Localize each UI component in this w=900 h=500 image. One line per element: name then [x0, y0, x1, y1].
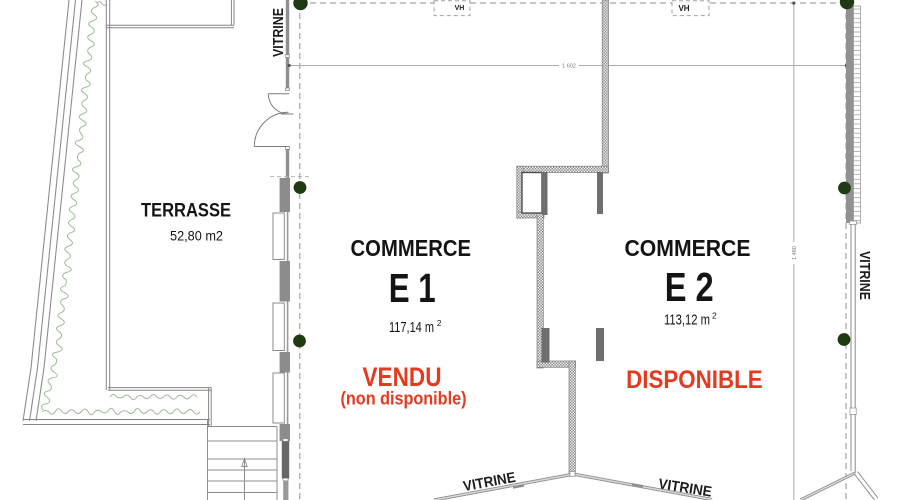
svg-text:VITRINE: VITRINE — [856, 251, 872, 300]
svg-text:VITRINE: VITRINE — [271, 8, 287, 57]
svg-text:1 602: 1 602 — [562, 64, 576, 70]
svg-text:52,80 m2: 52,80 m2 — [170, 228, 223, 244]
svg-text:E 2: E 2 — [665, 264, 714, 310]
svg-text:2: 2 — [437, 318, 442, 328]
svg-text:117,14 m: 117,14 m — [389, 320, 434, 336]
svg-text:1 480: 1 480 — [792, 246, 798, 260]
svg-text:E 1: E 1 — [389, 265, 436, 311]
svg-text:VENDU: VENDU — [363, 362, 442, 392]
svg-text:(non disponible): (non disponible) — [341, 389, 467, 409]
svg-text:2: 2 — [712, 311, 717, 321]
svg-text:VH: VH — [678, 4, 689, 13]
svg-text:COMMERCE: COMMERCE — [625, 235, 751, 261]
svg-text:DISPONIBLE: DISPONIBLE — [626, 366, 763, 394]
svg-text:COMMERCE: COMMERCE — [351, 235, 472, 261]
svg-text:TERRASSE: TERRASSE — [141, 200, 231, 222]
svg-text:113,12 m: 113,12 m — [664, 313, 710, 329]
svg-text:VH: VH — [455, 5, 465, 12]
